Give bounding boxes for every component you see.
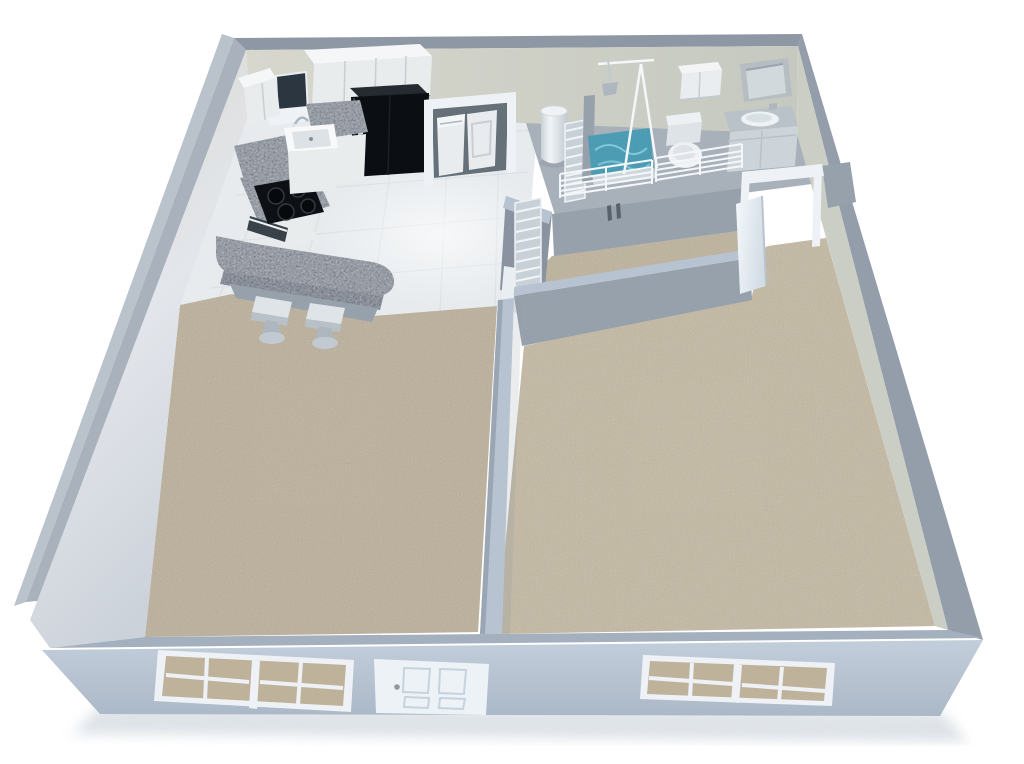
closet-west-wall: [500, 196, 552, 298]
wall-niche: [740, 58, 792, 102]
window-sill: [266, 106, 312, 126]
bathroom-floor: [520, 104, 812, 218]
front-door: [374, 659, 489, 715]
burner: [291, 183, 305, 197]
washer: [437, 114, 465, 176]
shower-curb: [592, 168, 656, 186]
closet-floor-carpet: [505, 220, 760, 305]
utility-area: [539, 60, 660, 202]
under-cabinet-light: [328, 105, 332, 109]
wall-end-cap: [497, 266, 516, 348]
water-heater: [539, 106, 569, 168]
bedroom-door: [736, 196, 766, 294]
floorplan-canvas: [0, 0, 1024, 764]
closet-area: [497, 144, 752, 348]
bar-stool-right: [305, 303, 345, 349]
bedroom-door-frame: [738, 164, 824, 256]
kitchen-window: [266, 72, 312, 126]
door-stub-wall: [822, 162, 856, 208]
floors: [135, 95, 945, 650]
back-wall-inner-face: [246, 46, 798, 134]
cooktop: [254, 176, 324, 224]
perimeter-walls: [14, 34, 983, 648]
bedroom-window: [640, 655, 835, 706]
right-wall-top: [798, 34, 983, 640]
building-drop-shadow: [72, 706, 968, 742]
kitchen-sink: [284, 118, 338, 194]
bar-base-wall: [230, 284, 378, 322]
living-room-floor-carpet: [135, 285, 510, 650]
bar-stool-left: [251, 296, 292, 344]
shower-head: [602, 60, 618, 96]
toilet: [666, 112, 702, 171]
vanity-with-sink: [724, 103, 798, 172]
burner: [278, 204, 294, 220]
closet-north-half-wall: [552, 188, 746, 256]
upper-cabinet-left: [238, 68, 280, 126]
vanity-faucet: [769, 103, 777, 110]
wire-shelving-right: [656, 144, 742, 182]
kitchen: [205, 44, 516, 349]
dryer: [467, 110, 497, 170]
right-wall-inner-face: [797, 46, 948, 630]
bedroom-floor-carpet: [490, 230, 945, 645]
granite-counters: [205, 90, 415, 320]
fridge-handle: [358, 119, 363, 135]
laundry-interior: [432, 98, 508, 178]
counter-back-run: [306, 100, 368, 140]
front-wall-top: [42, 630, 983, 648]
divider-carpet-shadow: [502, 299, 522, 636]
upper-cabinets: [304, 44, 432, 109]
burner: [301, 199, 315, 213]
front-wall-outer-face: [42, 640, 983, 716]
fridge-handle: [358, 137, 363, 155]
faucet: [295, 118, 308, 124]
counter-cooktop-run: [240, 164, 330, 226]
laundry-closet: [424, 92, 516, 186]
oven: [247, 216, 288, 242]
living-bedroom-divider-wall: [480, 298, 522, 636]
shower-side-wall: [582, 95, 595, 184]
sink-drain: [309, 137, 313, 141]
refrigerator: [350, 84, 430, 177]
left-wall-inner-face: [30, 50, 250, 648]
base-cabinets: [268, 134, 366, 248]
shower-glass-panels: [598, 60, 657, 174]
living-room-window: [154, 650, 354, 712]
wall-vents: [607, 203, 621, 221]
counter-left-run: [234, 134, 302, 180]
floorplan-3d-render: [0, 0, 1024, 764]
louvered-door-lower: [515, 198, 541, 290]
corner-base-cabinet: [268, 216, 320, 248]
breakfast-bar-top: [216, 236, 394, 296]
wire-shelving-left: [560, 160, 652, 198]
shower: [585, 60, 660, 186]
under-cabinet-light: [360, 101, 364, 105]
louvered-door-upper: [565, 120, 585, 202]
front-wall: [42, 630, 983, 716]
bedroom-door-area: [736, 162, 856, 294]
burner: [268, 188, 284, 204]
kitchen-floor-tile: [180, 95, 560, 330]
bathroom: [666, 58, 798, 172]
medicine-cabinet: [678, 62, 722, 100]
closet-south-wall: [497, 250, 752, 348]
left-wall-top: [26, 38, 246, 602]
door-knob: [394, 684, 400, 690]
back-wall-top: [234, 34, 802, 50]
left-wall-outer-face: [14, 34, 234, 606]
laundry-door-frame: [424, 92, 516, 186]
